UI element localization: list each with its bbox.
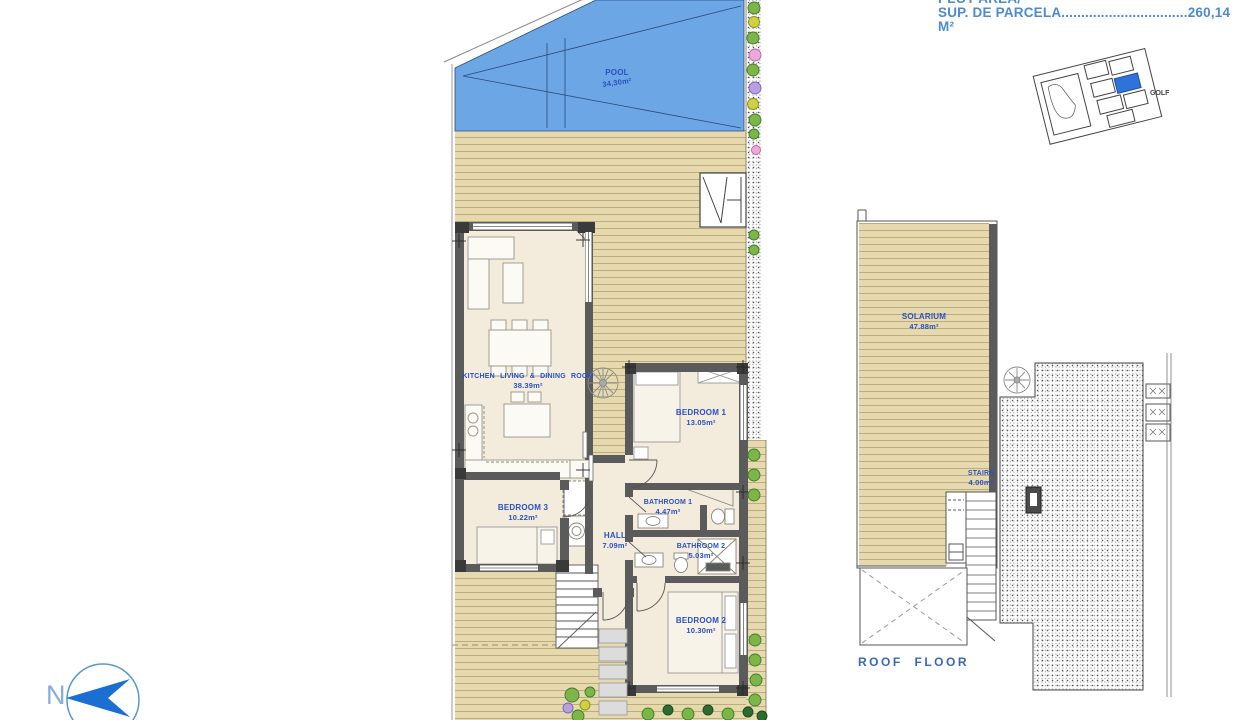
bathroom-1-label: BATHROOM 1 4.47m² (644, 498, 693, 517)
north-arrow-icon (66, 664, 139, 720)
site-highlighted-unit (1114, 73, 1141, 93)
solarium-label: SOLARIUM 47.88m² (902, 312, 946, 332)
roof-stairs-label: STAIRS 4.00m² (968, 469, 994, 488)
site-map-golf-label: GOLF (1150, 90, 1169, 97)
site-map (1033, 49, 1162, 145)
bedroom-3-label: BEDROOM 3 10.22m² (498, 503, 548, 523)
hall-label: HALL 7.09m² (603, 531, 628, 551)
roof-floor-title: ROOF FLOOR (858, 655, 969, 669)
ground-stairs (556, 565, 598, 648)
bedroom-2-label: BEDROOM 2 10.30m² (676, 616, 726, 636)
plot-area-annotation: PLOT AREA/ SUP. DE PARCELA..............… (938, 0, 1240, 35)
bedroom-1-label: BEDROOM 1 13.05m² (676, 408, 726, 428)
plot-area-value-line: SUP. DE PARCELA.........................… (938, 6, 1240, 34)
gate-symbol (700, 173, 746, 227)
kitchen-living-dining-label: KITCHEN LIVING & DINING ROOM 38.39m² (462, 372, 593, 391)
bathroom-2-label: BATHROOM 2 5.03m² (677, 542, 726, 561)
floor-plan-canvas: PLOT AREA/ SUP. DE PARCELA..............… (0, 0, 1240, 720)
entrance-path (599, 629, 627, 715)
pool-label: POOL 34,30m² (602, 68, 631, 89)
north-label: N (46, 680, 66, 711)
floorplan-linework (0, 0, 1240, 720)
pergola-units (1146, 384, 1170, 441)
roof-plan-outline (857, 210, 1171, 697)
